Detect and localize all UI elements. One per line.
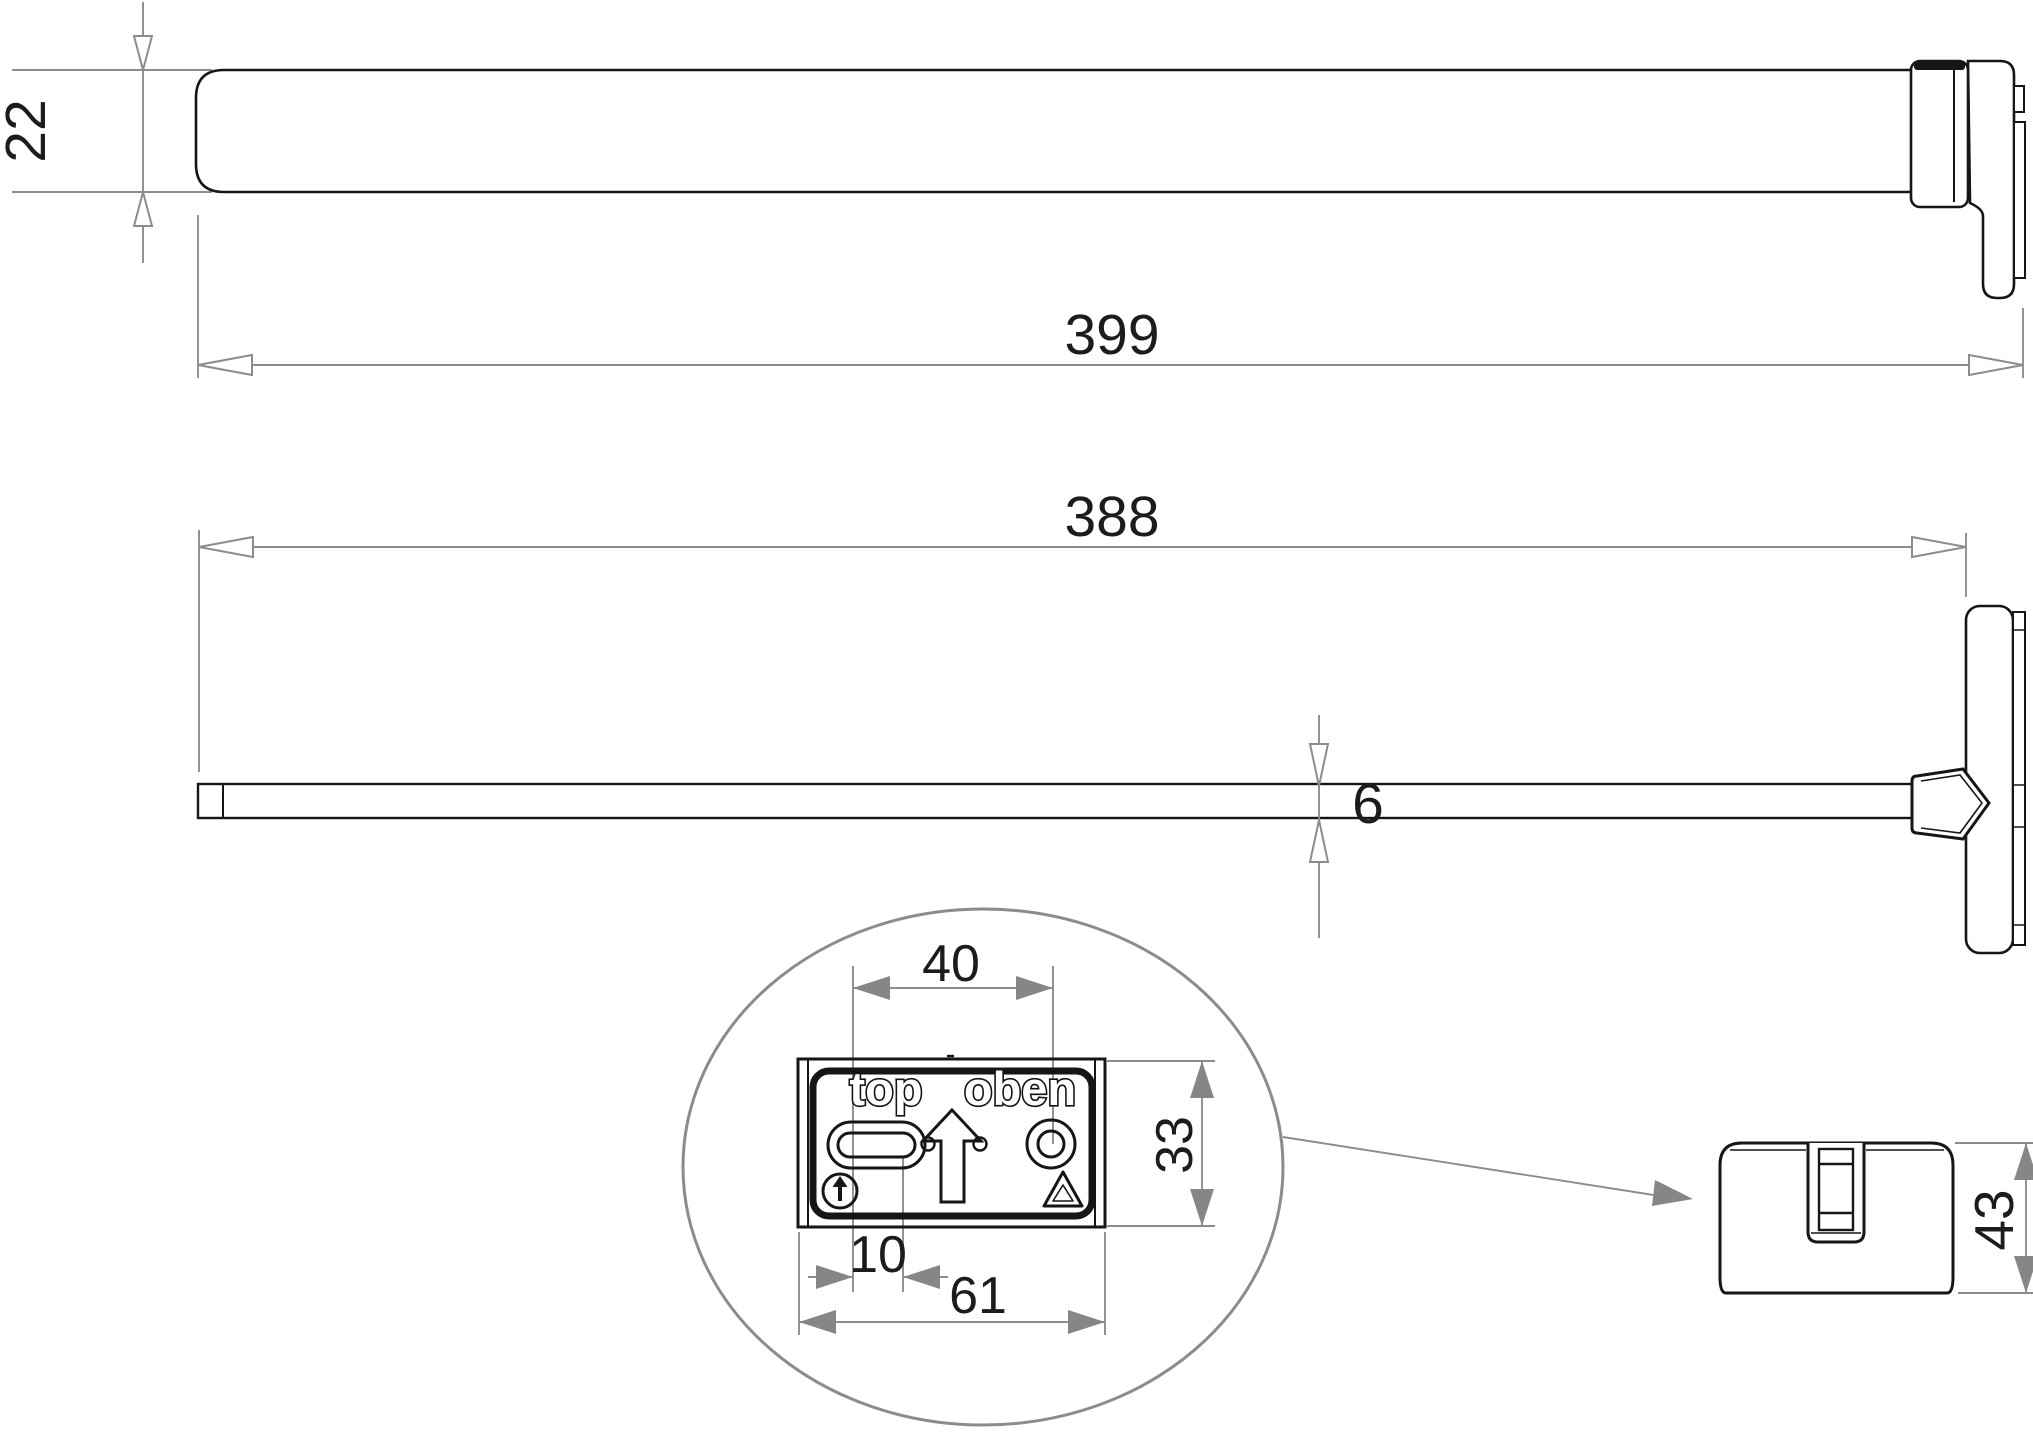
dim-text-cap-height: 43 [1963,1189,2025,1250]
dim-text-overall-length: 399 [1064,303,1159,367]
end-view: 43 [1720,1143,2033,1293]
bar-collar [1911,61,1968,207]
detail-view: top oben 40 10 61 33 [683,909,1693,1425]
dim-text-plate-height: 33 [1146,1116,1204,1174]
end-cap-side-view [1966,606,2013,953]
dim-text-bar-height: 22 [0,99,58,162]
arrow-40-left-icon [853,976,890,1000]
top-view: 22 399 [0,2,2025,378]
drawing-svg: 22 399 388 [0,0,2033,1443]
detail-leader-line [1283,1137,1660,1196]
arrow-61-right-icon [1068,1310,1105,1334]
cap-tab-inner [1819,1149,1853,1230]
technical-drawing-canvas: 22 399 388 [0,0,2033,1443]
arrow-43-top-icon [2014,1143,2033,1180]
cap-tab-top-view [2014,86,2024,112]
arrow-61-left-icon [799,1310,836,1334]
side-view: 388 6 [198,485,2025,953]
arrow-22-bottom-icon [134,192,152,226]
arrow-33-top-icon [1190,1061,1214,1098]
arrow-10-left-icon [816,1265,853,1289]
arrow-43-bottom-icon [2014,1256,2033,1293]
leader-arrow-icon [1652,1180,1693,1206]
push-bar-side-view [198,784,1913,818]
arrow-6-top-icon [1310,744,1328,786]
cap-plate-top-view [2014,122,2025,278]
dim-text-plate-width: 61 [949,1267,1007,1325]
plate-label-top: top [849,1062,922,1115]
dim-text-bar-thickness: 6 [1352,772,1384,836]
push-bar-top-view [196,70,1913,192]
arrow-10-right-icon [903,1265,940,1289]
end-cap-top-view [1968,61,2014,298]
arrow-6-bottom-icon [1310,820,1328,862]
cap-backplate-side-view [2013,612,2025,945]
dim-text-slot-length: 10 [849,1226,907,1284]
plate-label-oben: oben [964,1062,1076,1115]
arrow-388-right-icon [1912,537,1966,557]
arrow-40-right-icon [1016,976,1053,1000]
arrow-22-top-icon [134,36,152,70]
arrow-33-bottom-icon [1190,1189,1214,1226]
arrow-388-left-icon [199,537,253,557]
arrow-399-right-icon [1969,355,2023,375]
arrow-399-left-icon [198,355,252,375]
dim-text-slot-to-hole: 40 [922,935,980,993]
collar-top-edge [1914,62,1965,70]
dim-text-bar-length: 388 [1064,485,1159,549]
